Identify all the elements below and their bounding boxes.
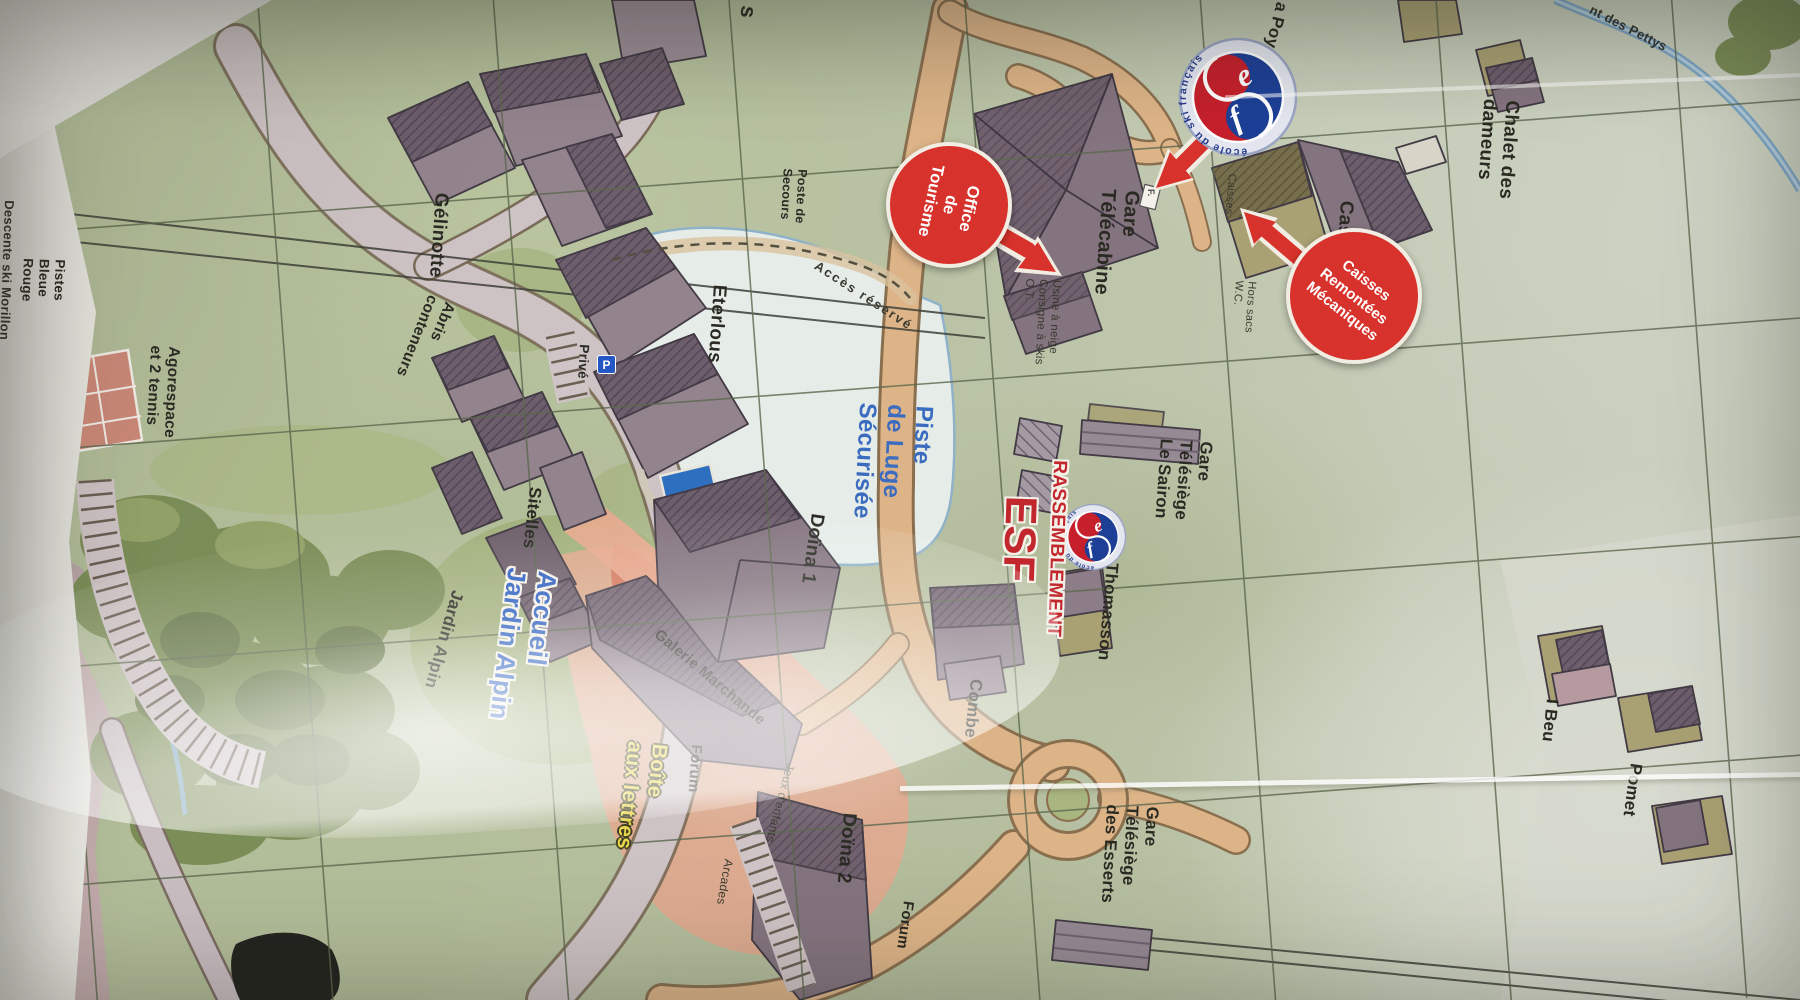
label-forum-1: Forum [685, 744, 705, 793]
parking-icon: P [597, 355, 616, 374]
label-hors-sacs-wc: Hors sacsW.C. [1228, 280, 1257, 333]
label-gare-esserts: GareTélésiègedes Esserts [1097, 804, 1162, 906]
tennis-courts [58, 350, 142, 452]
callout-office-de-tourisme: OfficedeTourisme [886, 142, 1012, 268]
callout-office-text: OfficedeTourisme [913, 163, 985, 247]
label-prive: Privé [575, 344, 592, 379]
label-poste-de-secours: Poste deSecours [777, 168, 809, 224]
label-piste-de-luge: Pistede LugeSécurisée [847, 402, 938, 522]
building-top-right [1398, 0, 1462, 42]
label-rassemblement-esf: RASSEMBLEMENT ESF [990, 458, 1070, 620]
cutoff-dark-shape [231, 933, 340, 1000]
label-services-ot: Usine à neigeConsigne à skisO.T. [1018, 278, 1063, 366]
label-chalet-des-dameurs: Chalet desdameurs [1471, 98, 1523, 200]
label-agorespace: Agorespaceet 2 tennis [141, 345, 182, 439]
resort-map-photo: e f école du ski français [0, 0, 1800, 1000]
label-pistes-bleue-rouge: PistesBleueRouge [18, 258, 67, 303]
label-f-box: F. [1146, 189, 1156, 197]
label-gare-sairon: GareTélésiègeLe Sairon [1150, 438, 1216, 522]
callout-caisses-text: CaissesRemontéesMécaniques [1302, 247, 1406, 346]
station-esserts [1052, 920, 1152, 970]
label-gare-telecabine: GareTélécabine [1089, 188, 1143, 297]
callout-caisses-remontees: CaissesRemontéesMécaniques [1286, 228, 1422, 364]
building-i-beu [1538, 626, 1616, 706]
